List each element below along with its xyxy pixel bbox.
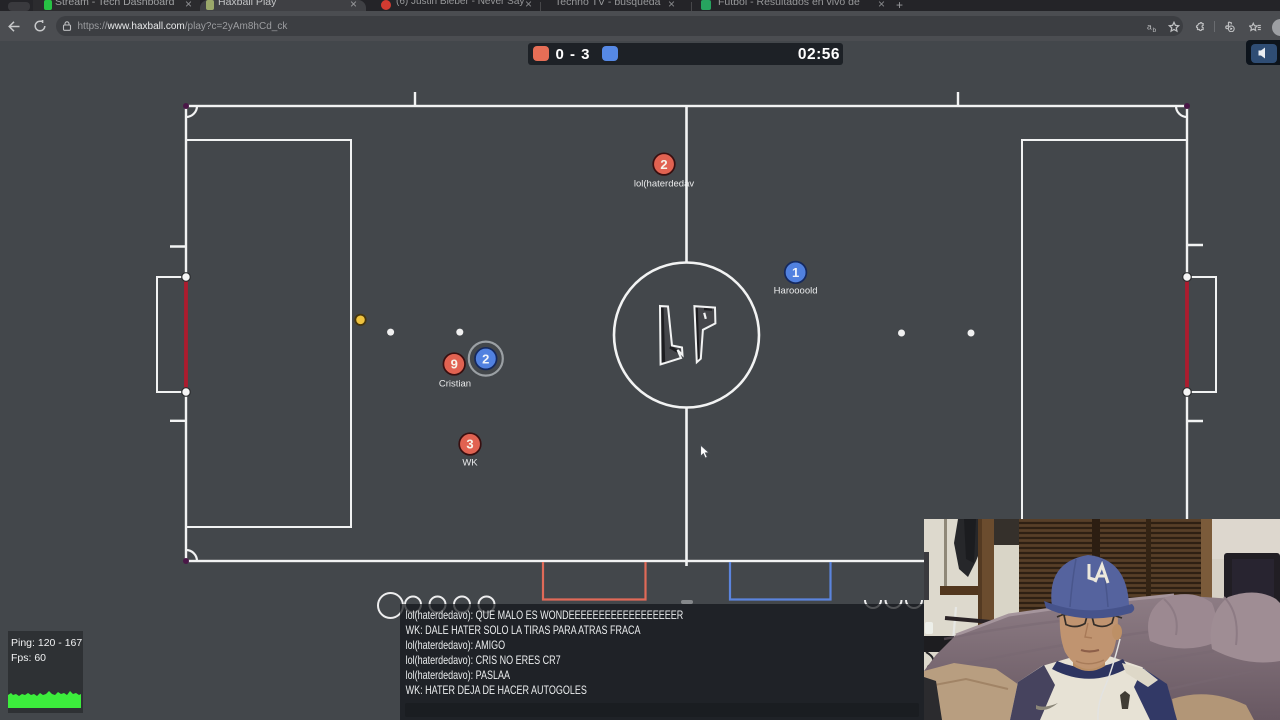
svg-text:9: 9: [451, 357, 458, 372]
svg-text:WK: WK: [462, 458, 478, 469]
svg-text:1: 1: [792, 265, 799, 280]
svg-text:Haroooold: Haroooold: [774, 286, 818, 297]
svg-text:3: 3: [466, 437, 473, 452]
svg-text:lol(haterdedav: lol(haterdedav: [634, 179, 694, 190]
svg-text:2: 2: [660, 157, 667, 172]
svg-text:Cristian: Cristian: [439, 379, 471, 390]
svg-text:2: 2: [482, 351, 489, 366]
